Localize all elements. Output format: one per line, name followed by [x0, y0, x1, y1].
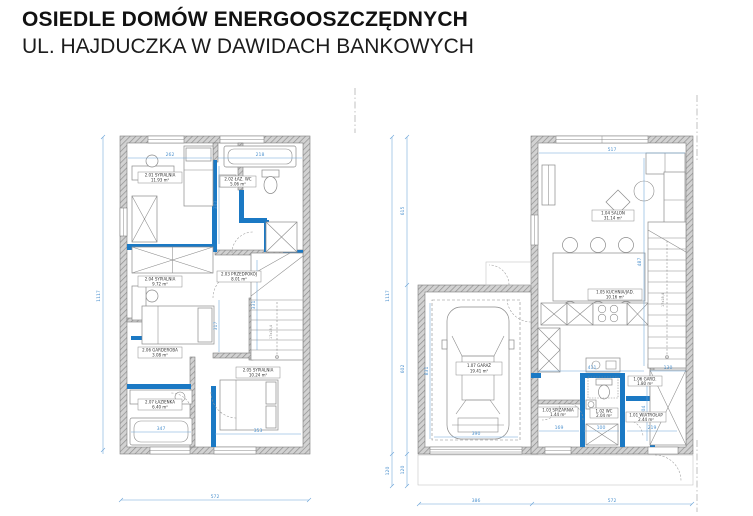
room-label: 1.02 WC 2.04 m² — [590, 408, 618, 418]
dimension-total-width: 386 572 — [417, 498, 694, 506]
svg-text:1117: 1117 — [96, 290, 102, 302]
svg-text:831: 831 — [424, 367, 430, 376]
stairs-note: 17x18,4 — [269, 325, 273, 339]
svg-text:218: 218 — [256, 152, 265, 158]
bed — [220, 380, 278, 430]
svg-text:8.01 m²: 8.01 m² — [231, 277, 247, 282]
tv-unit — [542, 165, 555, 205]
shower — [266, 222, 297, 252]
floor-plan-sheet: OSIEDLE DOMÓW ENERGOOSZCZĘDNYCH UL. HAJD… — [0, 0, 753, 516]
room-label: 1.04 SALON 31.14 m² — [592, 210, 634, 221]
svg-text:120: 120 — [400, 466, 406, 475]
svg-text:10.16 m²: 10.16 m² — [606, 295, 625, 300]
svg-text:6.40 m²: 6.40 m² — [152, 405, 168, 410]
dimension-height-segments: 615 602 120 — [400, 135, 409, 488]
svg-text:11.93 m²: 11.93 m² — [151, 178, 170, 183]
svg-text:1117: 1117 — [385, 290, 391, 302]
room-label: 2.01 SYPIALNIA 11.93 m² — [138, 172, 182, 183]
room-label: 2.03 PRZEDPOKÓJ 8.01 m² — [217, 271, 261, 282]
wardrobe — [132, 196, 157, 242]
svg-text:331: 331 — [251, 301, 257, 310]
stairs: 17x18,4 — [648, 222, 686, 368]
svg-text:1.07 GARAŻ: 1.07 GARAŻ — [467, 363, 491, 368]
ground-floor-plan: 17x18,4 — [385, 95, 697, 512]
room-label: 2.06 GARDEROBA 3.08 m² — [138, 347, 182, 358]
dimension-total-height: 1117 120 — [385, 135, 394, 488]
svg-text:353: 353 — [254, 428, 263, 434]
room-label: 1.05 KUCHNIA/JAD. 10.16 m² — [588, 289, 642, 300]
svg-text:262: 262 — [166, 152, 175, 158]
room-label: 1.03 SPIŻARNIA 1.44 m² — [538, 407, 578, 417]
svg-text:343: 343 — [213, 201, 219, 210]
svg-text:390: 390 — [472, 431, 481, 437]
room-label: 2.02 ŁAZ. WC 5.06 m² — [220, 176, 256, 187]
svg-text:169: 169 — [555, 425, 564, 431]
room-label: 2.05 SYPIALNIA 10.24 m² — [236, 367, 280, 378]
stairs-note: 17x18,4 — [661, 293, 665, 307]
svg-text:1.80 m²: 1.80 m² — [637, 381, 653, 386]
svg-text:120: 120 — [385, 467, 391, 476]
svg-text:10.24 m²: 10.24 m² — [249, 373, 268, 378]
chair — [146, 155, 158, 167]
entry-door-opening — [648, 447, 678, 454]
svg-text:572: 572 — [211, 494, 220, 500]
svg-text:2.04 m²: 2.04 m² — [596, 413, 612, 418]
svg-text:572: 572 — [608, 498, 617, 504]
wardrobe — [132, 247, 213, 273]
svg-text:317: 317 — [213, 322, 219, 331]
dimension-total-width: 572 — [119, 494, 311, 502]
svg-text:517: 517 — [608, 147, 617, 153]
svg-text:2.44 m²: 2.44 m² — [638, 417, 654, 422]
svg-text:9.72 m²: 9.72 m² — [152, 282, 168, 287]
fridge — [538, 328, 560, 372]
garage-door — [430, 447, 522, 454]
washbasin — [586, 400, 596, 409]
terrace-outline — [418, 455, 693, 485]
svg-text:100: 100 — [597, 425, 606, 431]
bed — [184, 146, 213, 206]
stairs: 17x18,4 — [251, 253, 303, 360]
room-label: 1.01 WIATROŁAP 2.44 m² — [626, 412, 666, 422]
svg-text:3.08 m²: 3.08 m² — [152, 353, 168, 358]
svg-text:487: 487 — [637, 258, 643, 267]
svg-text:347: 347 — [157, 426, 166, 432]
svg-text:5.06 m²: 5.06 m² — [230, 182, 246, 187]
svg-text:19.41 m²: 19.41 m² — [470, 369, 489, 374]
room-label: 2.04 SYPIALNIA 9.72 m² — [138, 276, 182, 287]
svg-text:411: 411 — [588, 365, 597, 371]
svg-text:615: 615 — [400, 207, 406, 216]
plans-drawing: 17x18,4 — [0, 0, 753, 516]
svg-text:130: 130 — [664, 365, 673, 371]
chair — [146, 290, 158, 302]
upper-floor-plan: 17x18,4 — [96, 88, 355, 502]
room-label: 1.06 GARD. 1.80 m² — [628, 376, 662, 386]
stove — [593, 303, 627, 325]
room-label: 2.07 ŁAZIENKA 6.40 m² — [138, 399, 182, 410]
svg-text:602: 602 — [400, 365, 406, 374]
bed — [142, 306, 214, 344]
svg-text:31.14 m²: 31.14 m² — [604, 216, 623, 221]
svg-text:219: 219 — [648, 425, 657, 431]
svg-text:386: 386 — [472, 498, 481, 504]
dimension-total-height: 1117 — [96, 135, 105, 454]
room-label: 1.07 GARAŻ 19.41 m² — [456, 362, 502, 375]
svg-text:1.44 m²: 1.44 m² — [550, 412, 566, 417]
